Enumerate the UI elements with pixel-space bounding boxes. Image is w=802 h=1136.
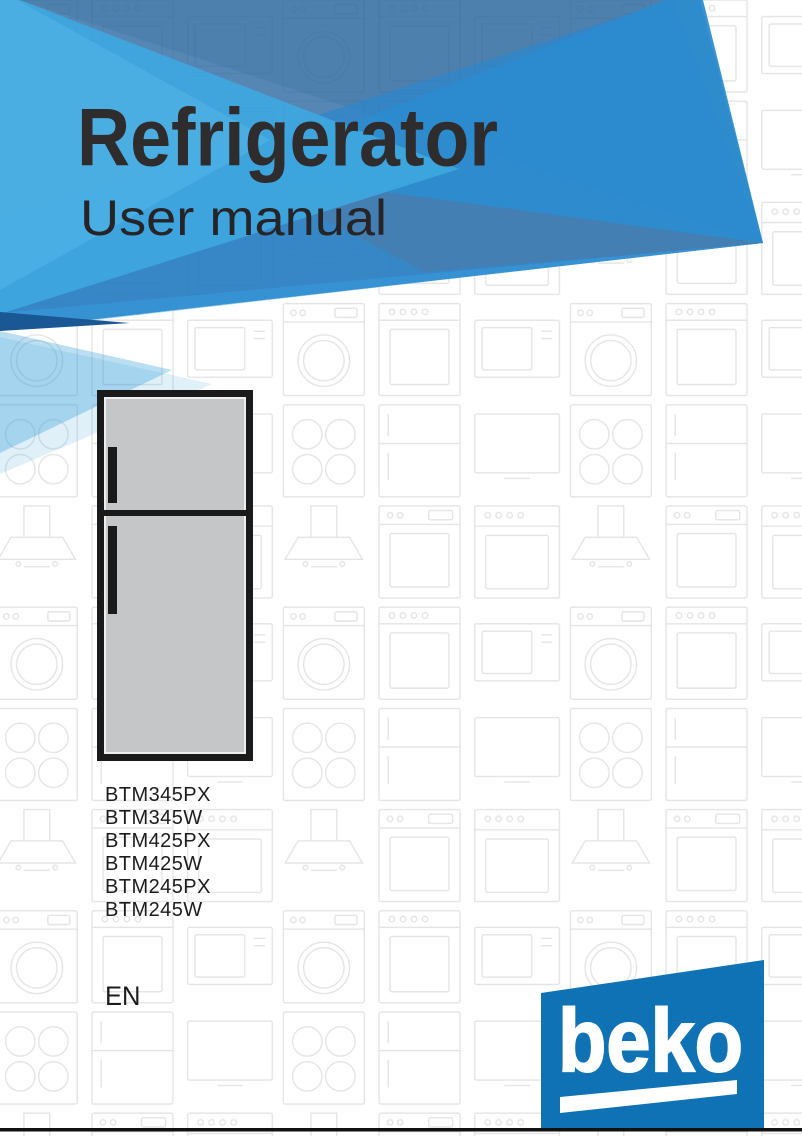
svg-text:BTM425W: BTM425W [105,853,203,875]
svg-text:BTM345PX: BTM345PX [105,784,211,806]
svg-text:beko: beko [558,990,743,1090]
svg-text:Refrigerator: Refrigerator [77,93,498,184]
svg-text:BTM245PX: BTM245PX [105,876,211,898]
svg-text:User manual: User manual [80,189,387,246]
svg-text:BTM245W: BTM245W [105,899,203,921]
svg-text:BTM425PX: BTM425PX [105,830,211,852]
svg-text:BTM345W: BTM345W [105,807,203,829]
svg-text:EN: EN [105,981,141,1011]
